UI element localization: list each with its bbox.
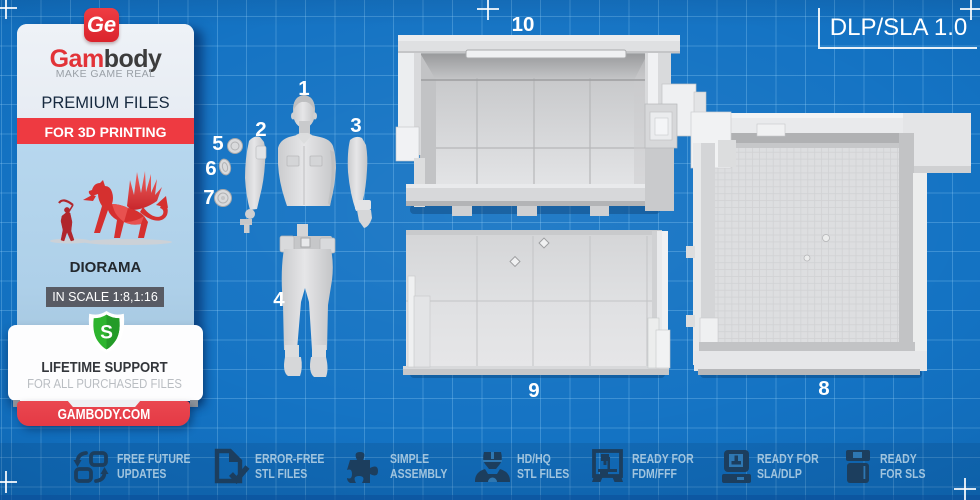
- svg-text:2: 2: [255, 118, 266, 141]
- svg-text:6: 6: [205, 157, 216, 180]
- svg-text:9: 9: [528, 379, 539, 402]
- svg-text:4: 4: [273, 288, 285, 311]
- svg-text:3: 3: [350, 114, 361, 137]
- svg-text:7: 7: [203, 186, 214, 209]
- svg-text:8: 8: [818, 377, 829, 400]
- svg-text:10: 10: [512, 13, 535, 36]
- svg-text:5: 5: [212, 132, 223, 155]
- svg-text:1: 1: [298, 77, 309, 100]
